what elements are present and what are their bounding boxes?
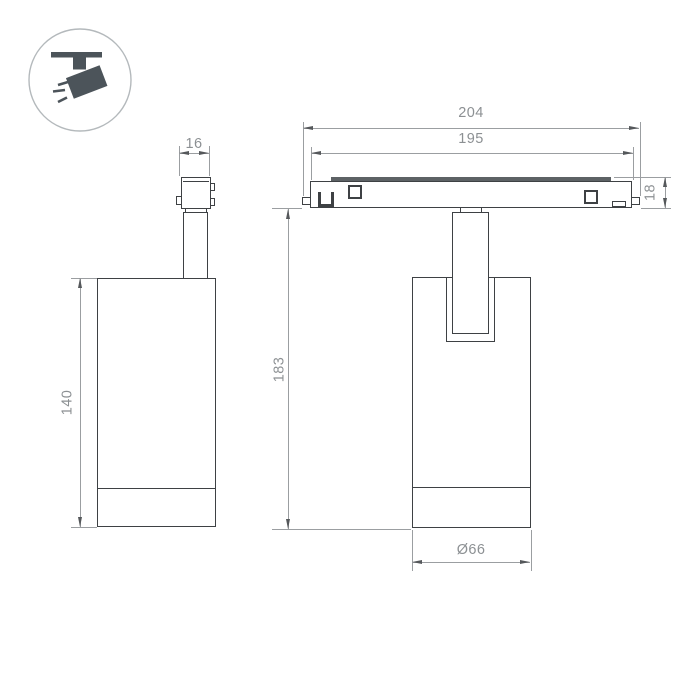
dim-arrow xyxy=(623,151,633,155)
dim-diameter-label: Ø66 xyxy=(441,543,501,558)
dim-body-height-label: 140 xyxy=(61,383,76,423)
dim-arrow xyxy=(286,519,290,529)
dim-hanging-height-ext-bottom xyxy=(272,529,411,530)
dim-track-body-label: 195 xyxy=(441,132,501,147)
side-body-trim-line xyxy=(98,488,215,489)
dim-arrow xyxy=(520,560,530,564)
dim-track-body-line xyxy=(311,153,633,154)
product-icon-badge xyxy=(0,0,160,160)
dim-arrow xyxy=(303,126,313,130)
front-body-trim-line xyxy=(413,487,530,488)
dim-track-overall-line xyxy=(303,128,639,129)
dim-adapter-width-label: 16 xyxy=(174,137,214,152)
side-lamp-body xyxy=(97,278,216,527)
side-stem xyxy=(183,212,208,279)
track-slot-detail xyxy=(612,201,626,207)
dim-arrow xyxy=(663,177,667,187)
dim-arrow xyxy=(629,126,639,130)
dim-arrow xyxy=(311,151,321,155)
side-adapter-cap-line xyxy=(183,181,209,182)
dim-body-height-line xyxy=(80,278,81,527)
dim-body-height-ext-top xyxy=(71,278,97,279)
dim-track-overall-ext-left xyxy=(303,122,304,196)
dim-arrow xyxy=(412,560,422,564)
dim-arrow xyxy=(78,517,82,527)
track-spotlight-icon xyxy=(0,0,160,160)
front-stem xyxy=(452,212,489,334)
dim-diameter-line xyxy=(412,562,530,563)
dim-arrow xyxy=(663,198,667,208)
track-clip xyxy=(318,192,334,207)
dim-track-overall-ext-right xyxy=(640,122,641,196)
track-window-right xyxy=(584,190,598,204)
dim-hanging-height-label: 183 xyxy=(273,349,288,389)
dim-body-height-ext-bottom xyxy=(71,527,97,528)
dim-arrow xyxy=(286,209,290,219)
track-window-left xyxy=(348,185,362,199)
dim-arrow xyxy=(78,278,82,288)
dim-hanging-height-line xyxy=(288,209,289,529)
dim-diameter-ext-left xyxy=(412,530,413,571)
side-track-adapter xyxy=(181,177,211,209)
dim-track-height-label: 18 xyxy=(644,173,659,213)
technical-drawing-canvas: 16 140 204 195 xyxy=(0,0,700,700)
dim-diameter-ext-right xyxy=(531,530,532,571)
dim-track-overall-label: 204 xyxy=(441,106,501,121)
